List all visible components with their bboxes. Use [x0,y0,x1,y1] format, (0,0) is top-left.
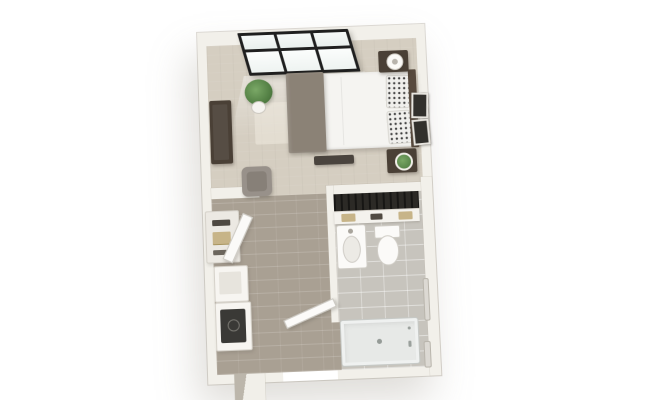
sink-faucet [348,229,353,234]
entry-doorway-gap [283,370,338,381]
bed [286,70,419,151]
sink-basin [342,235,361,263]
dresser-top [212,104,229,160]
wall-art [411,93,428,119]
floorplan-canvas [0,0,666,400]
wall-art [411,119,430,146]
bed-pillow [386,109,413,144]
stove [215,301,253,351]
window-pane [318,48,357,70]
kitchen-counter [214,265,249,303]
window-pane [313,32,350,47]
pedestal-sink [336,224,368,269]
toilet-bowl [376,235,399,266]
bench [314,155,354,166]
window-pane [277,33,314,48]
dresser [209,100,233,164]
shelf-linen [341,213,355,222]
pantry-linens [212,232,230,245]
window [237,29,360,76]
shower [340,317,421,367]
counter-top [219,271,242,294]
bed-throw-blanket [286,72,327,153]
shower-drain [377,339,382,344]
armchair [241,166,272,197]
towel-bar [424,341,432,368]
armchair-seat [247,171,268,192]
shelf-linen [398,211,412,220]
exterior-stub-wall [234,373,266,400]
cooktop [220,309,246,344]
shower-fixture [408,326,411,329]
bed-pillow [386,75,410,109]
shelf-item-dark [370,213,382,219]
pantry-item-dark [212,219,230,226]
shower-control [408,341,411,347]
toilet [374,225,400,266]
window-pane [246,51,285,73]
window-pane [241,35,278,50]
cooktop-burner [227,319,240,332]
window-pane [282,50,321,72]
apartment-unit [197,24,441,385]
